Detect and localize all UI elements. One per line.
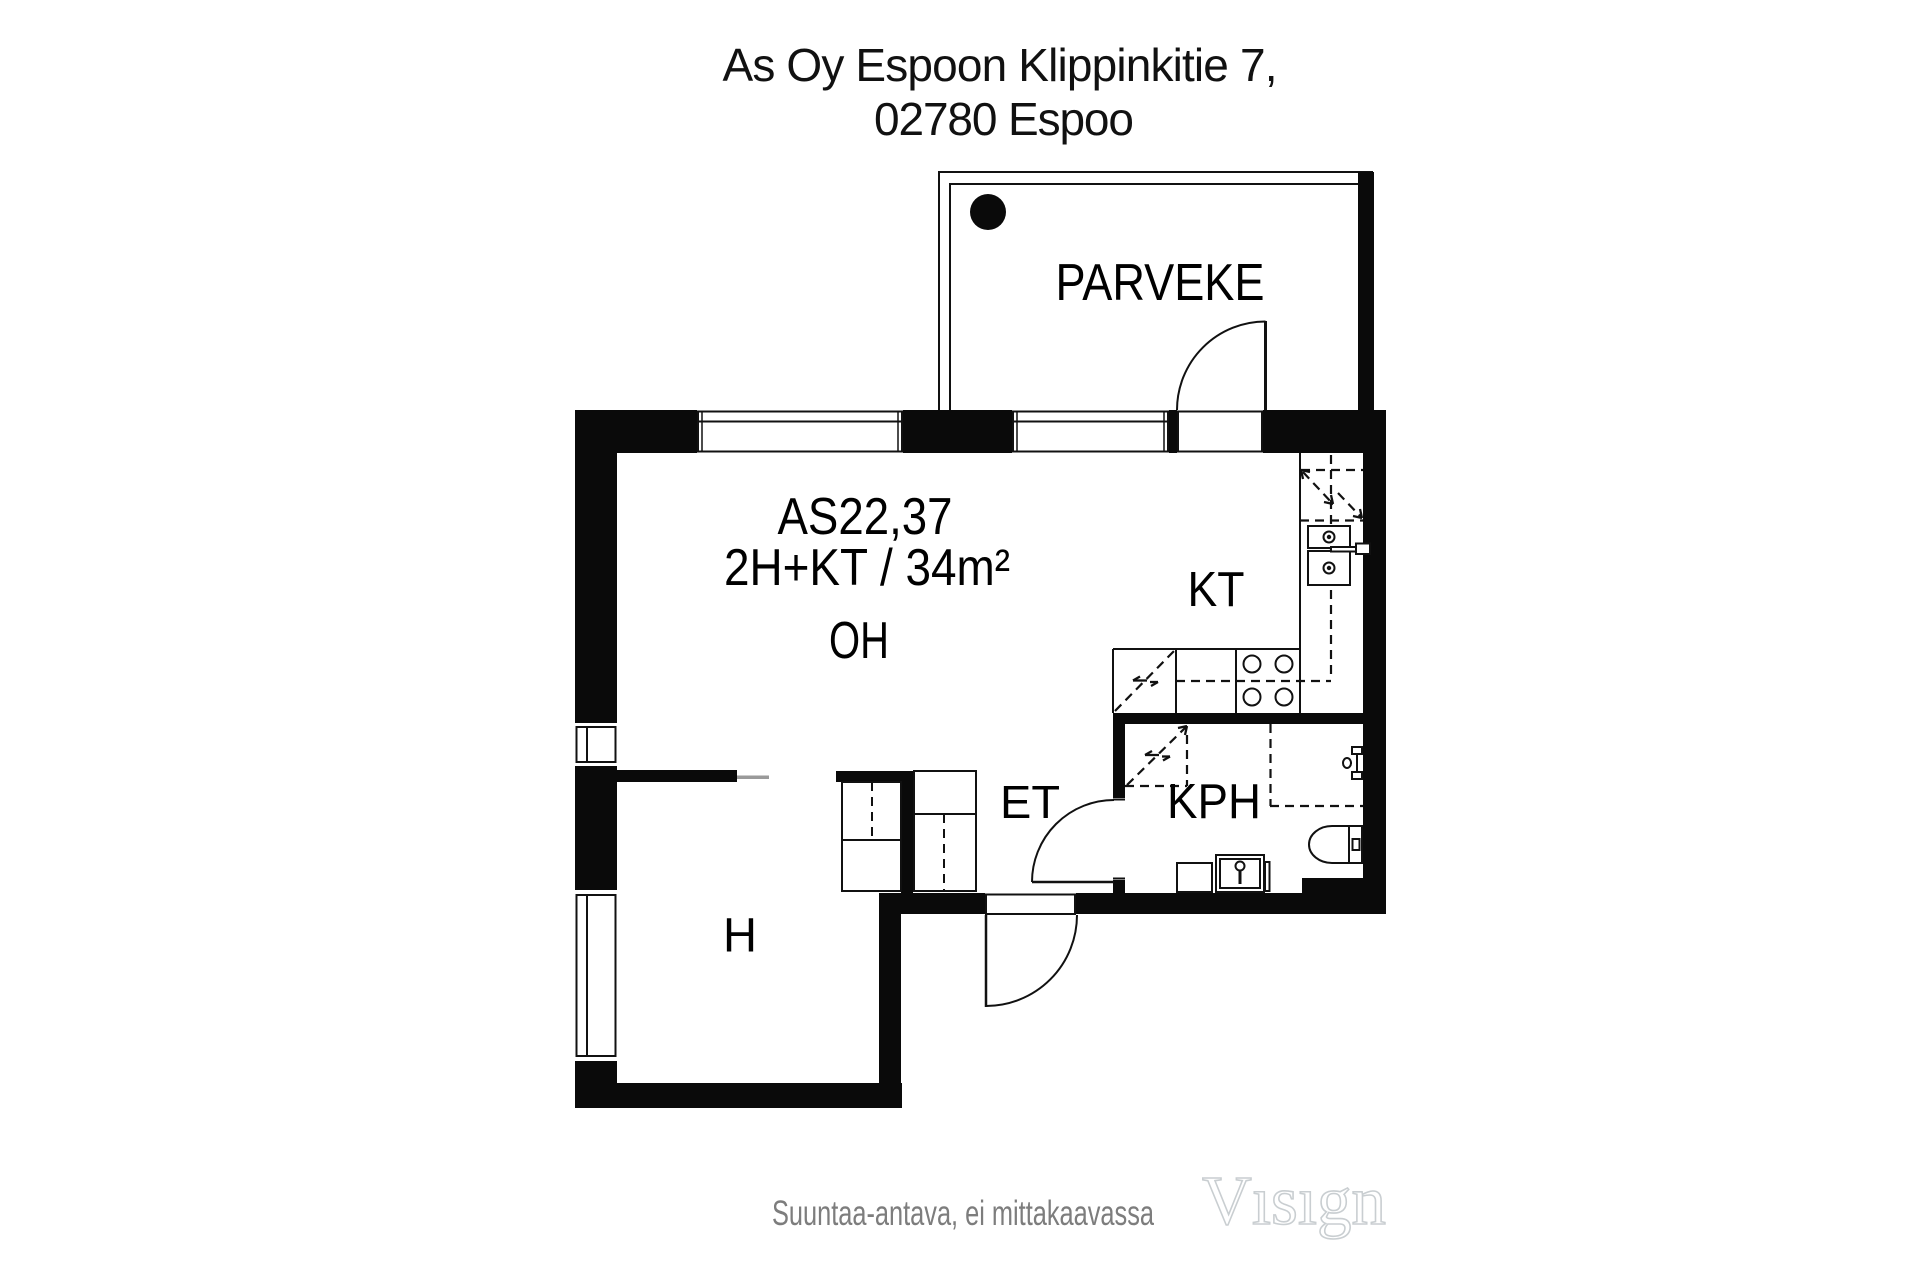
svg-text:AS22,37: AS22,37 bbox=[778, 488, 953, 546]
svg-text:KPH: KPH bbox=[1167, 775, 1261, 829]
svg-text:Vısıgn: Vısıgn bbox=[1202, 1163, 1386, 1240]
svg-text:2H+KT / 34m²: 2H+KT / 34m² bbox=[724, 539, 1010, 597]
svg-text:As Oy Espoon Klippinkitie 7,: As Oy Espoon Klippinkitie 7, bbox=[723, 39, 1278, 91]
svg-text:KT: KT bbox=[1188, 563, 1245, 617]
svg-text:PARVEKE: PARVEKE bbox=[1056, 254, 1265, 312]
svg-text:H: H bbox=[723, 910, 757, 963]
svg-text:OH: OH bbox=[829, 612, 889, 670]
svg-text:ET: ET bbox=[1000, 776, 1060, 828]
svg-text:02780 Espoo: 02780 Espoo bbox=[874, 93, 1134, 145]
svg-text:Suuntaa-antava, ei mittakaavas: Suuntaa-antava, ei mittakaavassa bbox=[772, 1194, 1154, 1233]
